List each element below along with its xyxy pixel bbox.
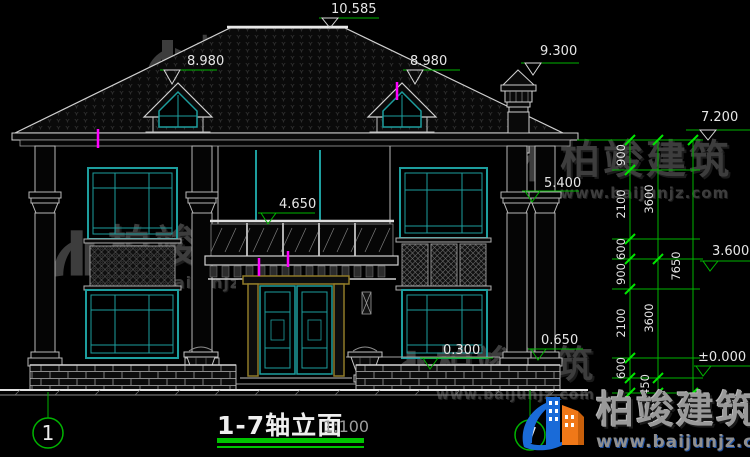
wall-lamp bbox=[362, 292, 371, 314]
dim-2100: 2100 bbox=[614, 308, 628, 337]
title-underline bbox=[217, 438, 364, 443]
elevation-dormer-left: 8.980 bbox=[187, 54, 224, 69]
window-left-1f bbox=[86, 290, 178, 358]
plinth-right bbox=[356, 365, 560, 390]
dim-3600: 3600 bbox=[642, 184, 656, 213]
elevation-dormer-right: 8.980 bbox=[410, 54, 447, 69]
brand-logo-icon bbox=[516, 391, 590, 453]
dim-900: 900 bbox=[614, 263, 628, 285]
dim-900: 900 bbox=[614, 144, 628, 166]
hip-roof bbox=[15, 27, 563, 133]
door-lintel bbox=[243, 276, 349, 284]
window-left-2f bbox=[88, 168, 177, 239]
elevation-capital: 5.400 bbox=[544, 176, 581, 191]
pilaster-3 bbox=[500, 146, 534, 366]
elevation-chimney: 9.300 bbox=[540, 44, 577, 59]
axis-label-1: 1 bbox=[42, 421, 55, 445]
door-leaf-right bbox=[297, 286, 332, 374]
drawing-scale: 1:100 bbox=[323, 417, 369, 436]
dim-3600: 3600 bbox=[642, 303, 656, 332]
elevation-porch: 0.650 bbox=[541, 333, 578, 348]
door-leaf-left bbox=[260, 286, 295, 374]
plinth-left bbox=[30, 365, 236, 390]
entry-door bbox=[234, 276, 358, 390]
dim-600: 600 bbox=[614, 357, 628, 379]
pilaster-1 bbox=[28, 146, 62, 366]
dim-600: 600 bbox=[614, 238, 628, 260]
dim-2100: 2100 bbox=[614, 189, 628, 218]
elevation-ground: ±0.000 bbox=[698, 350, 746, 365]
balcony-slab bbox=[205, 256, 398, 265]
elevation-second-floor: 3.600 bbox=[712, 244, 749, 259]
title-underline-thin bbox=[217, 446, 364, 448]
dimension-ticks bbox=[625, 135, 698, 398]
elevation-eave: 7.200 bbox=[701, 110, 738, 125]
lattice-screen bbox=[402, 244, 486, 286]
ground-line bbox=[0, 390, 588, 395]
spandrel-panel bbox=[90, 246, 175, 286]
glass-railing bbox=[211, 224, 393, 256]
elevation-ridge: 10.585 bbox=[331, 2, 377, 17]
brand-logo: 柏竣建筑 www.baijunjz.com bbox=[516, 391, 750, 453]
window-sill-band bbox=[396, 238, 491, 242]
brand-logo-url: www.baijunjz.com bbox=[596, 432, 750, 452]
window-right-2f bbox=[400, 168, 487, 238]
elevation-balcony: 4.650 bbox=[279, 197, 316, 212]
window-sill-band bbox=[84, 239, 181, 243]
elevation-sill: 0.300 bbox=[443, 343, 480, 358]
dimension-chain bbox=[577, 140, 703, 393]
brand-logo-text: 柏竣建筑 bbox=[596, 391, 750, 429]
dim-7650: 7650 bbox=[669, 251, 683, 280]
cad-elevation-drawing: 柏竣建筑 www.baijunjz.com 柏竣建筑 www.baijunjz.… bbox=[0, 0, 750, 457]
